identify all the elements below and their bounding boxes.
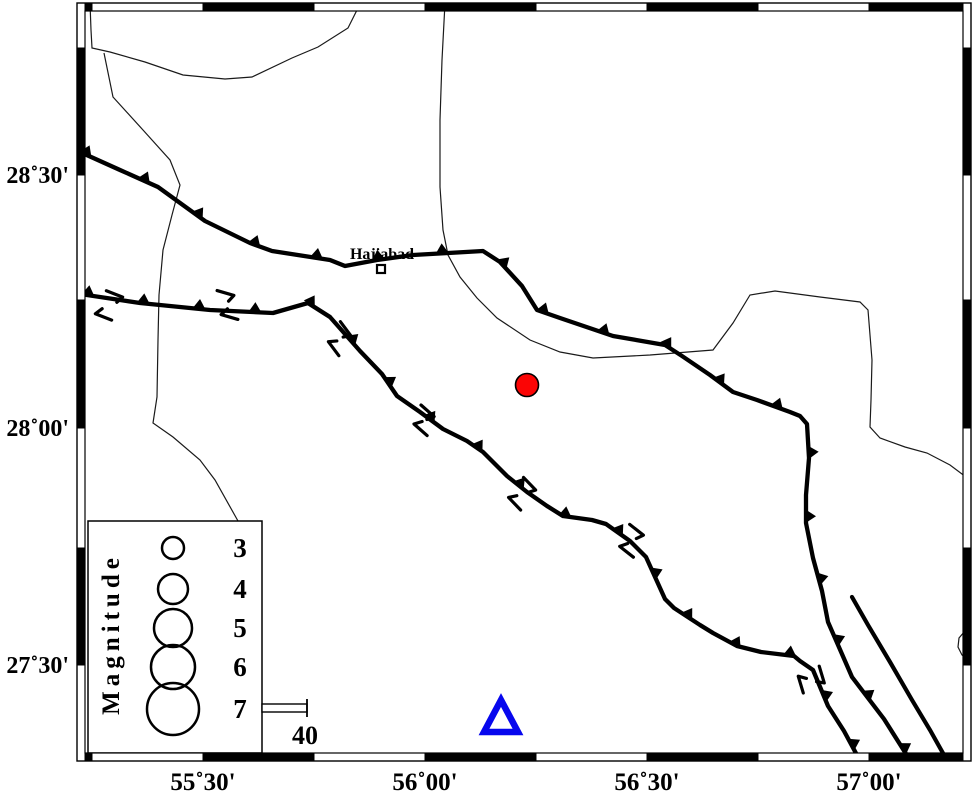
legend-label-mag-7: 7 xyxy=(233,694,247,724)
frame-band-bottom xyxy=(869,753,963,761)
scale-bar xyxy=(262,704,307,712)
frame-band-top xyxy=(758,3,869,11)
frame-band-left xyxy=(77,175,85,300)
frame-band-right xyxy=(963,3,971,48)
frame-band-top xyxy=(314,3,425,11)
frame-band-left xyxy=(77,665,85,761)
frame-band-top xyxy=(203,3,314,11)
seismotectonic-map: HajiabadMagnitude345674055˚30'56˚00'56˚3… xyxy=(0,0,978,796)
frame-band-bottom xyxy=(314,753,425,761)
frame-band-bottom xyxy=(647,753,758,761)
frame-band-top xyxy=(425,3,536,11)
frame-band-left xyxy=(77,300,85,428)
y-axis-label: 28˚30' xyxy=(6,163,69,189)
map-canvas: HajiabadMagnitude345674055˚30'56˚00'56˚3… xyxy=(0,0,978,796)
frame-band-right xyxy=(963,48,971,175)
x-axis-label: 56˚00' xyxy=(392,769,457,796)
frame-band-bottom xyxy=(536,753,647,761)
frame-band-left xyxy=(77,548,85,665)
frame-band-left xyxy=(77,48,85,175)
frame-band-top xyxy=(92,3,203,11)
frame-band-bottom xyxy=(92,753,203,761)
frame-band-right xyxy=(963,428,971,548)
frame-band-right xyxy=(963,548,971,665)
frame-band-bottom xyxy=(203,753,314,761)
frame-band-bottom xyxy=(758,753,869,761)
frame-band-top xyxy=(536,3,647,11)
frame-band-left xyxy=(77,3,85,48)
frame-band-top xyxy=(85,3,92,11)
legend-label-mag-4: 4 xyxy=(233,574,247,604)
x-axis-label: 57˚00' xyxy=(836,769,901,796)
x-axis-label: 56˚30' xyxy=(614,769,679,796)
frame-band-bottom xyxy=(425,753,536,761)
frame-band-right xyxy=(963,665,971,761)
frame-band-bottom xyxy=(85,753,92,761)
frame-band-right xyxy=(963,175,971,300)
scale-bar-label: 40 xyxy=(292,721,318,750)
town-marker xyxy=(377,265,385,273)
frame-band-left xyxy=(77,428,85,548)
x-axis-label: 55˚30' xyxy=(170,769,235,796)
y-axis-label: 28˚00' xyxy=(6,416,69,442)
legend-label-mag-5: 5 xyxy=(233,613,247,643)
frame-band-top xyxy=(869,3,963,11)
legend-label-mag-6: 6 xyxy=(233,652,247,682)
legend-title: Magnitude xyxy=(98,553,125,715)
y-axis-label: 27˚30' xyxy=(6,653,69,679)
legend-label-mag-3: 3 xyxy=(233,533,247,563)
frame-band-right xyxy=(963,300,971,428)
frame-band-top xyxy=(647,3,758,11)
town-label: Hajiabad xyxy=(350,246,414,263)
epicenter-marker xyxy=(516,374,539,397)
